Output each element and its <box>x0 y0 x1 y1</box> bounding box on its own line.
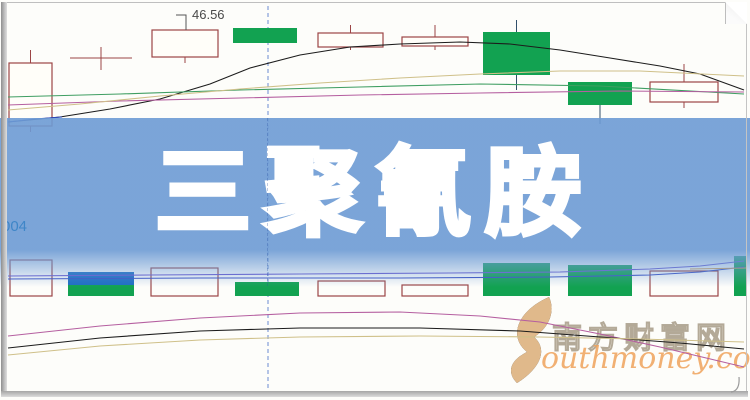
frame-right-edge <box>746 23 747 391</box>
ma-magenta <box>8 91 744 105</box>
title-banner: 三聚氰胺 <box>0 118 750 287</box>
candle-hollow <box>402 37 468 46</box>
ind-tan <box>8 336 744 355</box>
frame-bottom-edge <box>1 391 748 397</box>
candle-up <box>233 28 297 43</box>
ma-black <box>8 42 744 122</box>
candle-hollow <box>9 63 52 126</box>
page-curl-bottom-right-icon <box>728 372 748 394</box>
page-fold-corner <box>725 2 747 24</box>
price-marker-pointer <box>176 15 186 30</box>
price-marker-label: 46.56 <box>192 7 225 22</box>
stock-chart-page: 南方财富网 outhmoney.com 46.56 三聚氰胺 004 <box>0 0 750 400</box>
ma-tan <box>8 71 744 110</box>
candle-hollow <box>318 33 383 47</box>
candle-hollow <box>152 30 218 57</box>
frame-left-edge <box>1 2 7 397</box>
banner-title: 三聚氰胺 <box>155 146 595 260</box>
candle-up <box>483 32 550 75</box>
dashed-crosshair-overlay <box>267 118 268 286</box>
frame-top-edge <box>7 2 726 3</box>
